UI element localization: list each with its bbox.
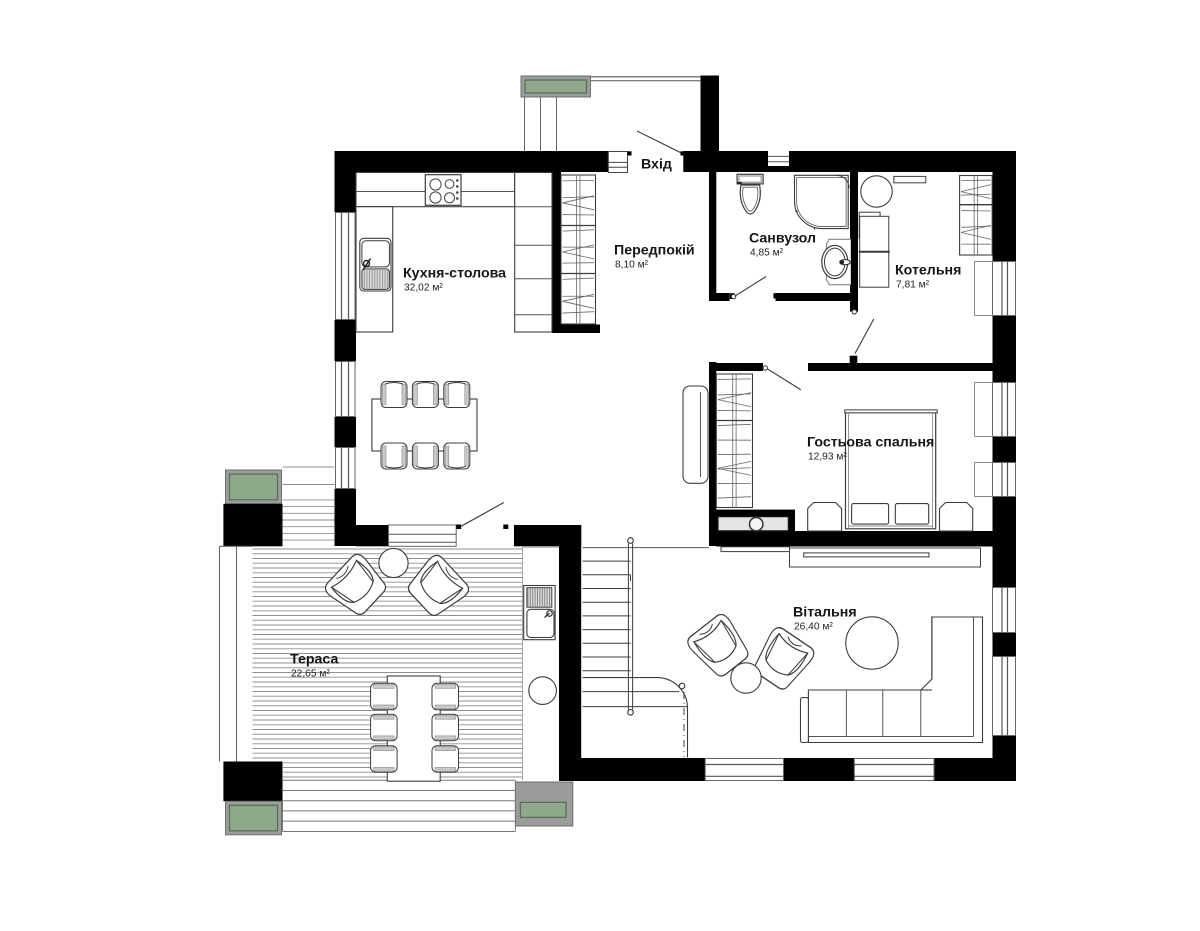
svg-text:4,85 м²: 4,85 м²	[750, 248, 784, 259]
svg-text:7,81 м²: 7,81 м²	[896, 280, 930, 291]
svg-text:32,02 м²: 32,02 м²	[404, 283, 443, 294]
svg-text:Вітальня: Вітальня	[793, 605, 857, 621]
svg-text:Кухня-столова: Кухня-столова	[403, 266, 506, 282]
svg-text:Гостьова спальня: Гостьова спальня	[807, 435, 934, 451]
svg-text:12,93 м²: 12,93 м²	[808, 452, 847, 463]
svg-text:22,65 м²: 22,65 м²	[291, 669, 330, 680]
svg-text:Передпокій: Передпокій	[614, 243, 695, 259]
svg-text:Тераса: Тераса	[290, 652, 338, 668]
svg-text:26,40 м²: 26,40 м²	[794, 622, 833, 633]
svg-text:Котельня: Котельня	[895, 263, 961, 279]
svg-text:Вхід: Вхід	[641, 157, 672, 173]
svg-text:8,10 м²: 8,10 м²	[615, 260, 649, 271]
svg-text:Санвузол: Санвузол	[749, 231, 816, 247]
